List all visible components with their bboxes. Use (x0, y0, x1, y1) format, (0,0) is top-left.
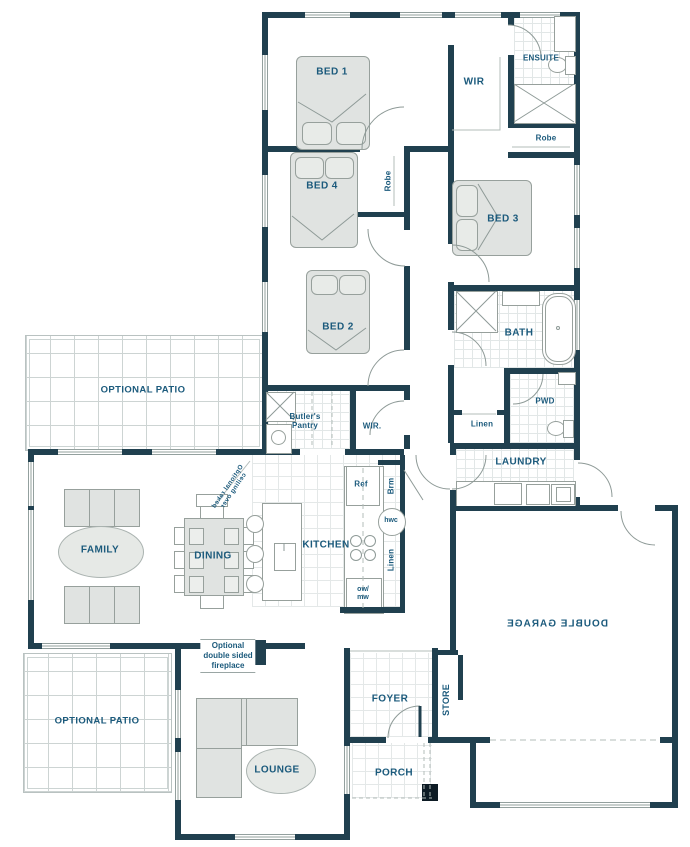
wall-wir-left (448, 45, 454, 150)
room-label-bath: BATH (505, 327, 534, 339)
placemat (189, 576, 204, 593)
porch-pier (422, 784, 438, 801)
room-label-lounge: LOUNGE (254, 764, 299, 776)
butlers-line1: Butler's (289, 412, 320, 421)
island-sink (274, 543, 296, 571)
room-label-robe-ensuite: Robe (536, 133, 557, 142)
bed-pillow (336, 122, 366, 145)
room-label-wir-master: WIR (464, 76, 485, 88)
wall-garage-left (450, 511, 456, 655)
window (42, 643, 110, 649)
door-arc-hall-entry (416, 455, 450, 489)
room-label-pwd: PWD (535, 396, 554, 405)
window (175, 752, 181, 800)
wall-laundry-top (450, 443, 580, 449)
door-arc-garage (621, 511, 655, 545)
room-label-butlers-pantry: Butler's Pantry (289, 412, 320, 430)
room-label-bed3: BED 3 (487, 213, 518, 225)
owmw-line1: ow/ (357, 586, 369, 594)
wall-store-right (458, 655, 463, 700)
window (235, 834, 295, 840)
door-arc-laundry-ext (578, 463, 612, 497)
window (400, 12, 442, 18)
wall-foyer-bottom (347, 737, 386, 743)
ensuite-toilet-tank (565, 56, 576, 75)
bath-shower (456, 291, 498, 333)
room-label-patio-top: OPTIONAL PATIO (101, 386, 186, 397)
bed-pillow (325, 157, 354, 179)
wall-hall-left (404, 152, 410, 230)
door-arc-bed2 (368, 350, 404, 386)
floor-plan: BED 1 BED 4 BED 2 BED 3 WIR ENSUITE Robe… (0, 0, 690, 847)
wall-foyer-store (432, 648, 438, 737)
room-label-foyer: FOYER (372, 693, 408, 705)
pwd-toilet-tank (563, 420, 574, 438)
window (574, 228, 580, 268)
bed-pillow (339, 275, 366, 295)
wall-laundry-left (450, 443, 456, 455)
fixture-label-ow-mw: ow/ mw (357, 586, 369, 602)
wall-robe4-bottom (356, 212, 408, 217)
room-label-family: FAMILY (81, 544, 119, 556)
wall-linen-top (450, 410, 462, 415)
pantry-basin (271, 430, 286, 445)
placemat (189, 528, 204, 545)
room-label-patio-bottom: OPTIONAL PATIO (55, 717, 140, 728)
wir-shelf-line (452, 57, 500, 130)
placemat (224, 576, 239, 593)
wall-hall-left (404, 435, 410, 449)
room-label-garage: DOUBLE GARAGE (506, 618, 608, 630)
bed-pillow (456, 219, 478, 251)
wall-garage-front (660, 737, 672, 743)
sliding-door (28, 510, 34, 600)
window (58, 449, 122, 455)
wall-lounge-left (175, 648, 181, 840)
sofa-icon (64, 586, 140, 624)
wall-lounge-foyer (344, 648, 350, 737)
stool-icon (246, 515, 264, 533)
window (305, 12, 350, 18)
dining-chair (200, 594, 224, 609)
ensuite-shower (514, 84, 576, 124)
butlers-line2: Pantry (289, 421, 320, 430)
wall-kitchen-bottom (340, 607, 405, 613)
wall-garage-front (432, 737, 490, 743)
room-label-laundry: LAUNDRY (495, 456, 546, 468)
wall-linen-top (497, 410, 510, 415)
window (344, 746, 350, 794)
room-label-bed1: BED 1 (316, 66, 347, 78)
fireplace-line1: Optional (203, 641, 252, 651)
wall-wirhall-bottom (345, 449, 404, 455)
fixture-label-brm: Brm (386, 478, 395, 495)
room-label-linen-hall: Linen (471, 419, 493, 428)
wall-brm-top (378, 460, 405, 465)
annotation-fireplace: Optional double sided fireplace (200, 639, 255, 673)
placemat (224, 528, 239, 545)
annotation-raked-ceiling: Optional raked ceiling over (211, 464, 252, 515)
owmw-line2: mw (357, 594, 369, 602)
window (455, 12, 501, 18)
room-label-store: STORE (441, 684, 451, 716)
washer-icon (526, 484, 550, 505)
bed-pillow (456, 185, 478, 217)
wall-hall-right (448, 365, 454, 443)
window (262, 55, 268, 110)
fixture-label-ref: Ref (354, 479, 368, 488)
room-label-dining: DINING (194, 550, 231, 562)
window (152, 449, 216, 455)
dryer-drum (556, 487, 571, 502)
fixture-label-linen-kitchen: Linen (386, 549, 395, 571)
room-label-robe-bed4: Robe (383, 171, 392, 192)
stool-icon (246, 575, 264, 593)
window (28, 462, 34, 506)
window (262, 175, 268, 227)
fixture-label-hwc: hwc (384, 517, 398, 525)
wall-bed1-bottom (404, 146, 454, 152)
brm-door-line (404, 470, 423, 500)
bed-pillow (302, 122, 332, 145)
sofa-icon (64, 489, 140, 527)
wall-hall-left (404, 266, 410, 350)
bath-vanity (502, 291, 540, 306)
window (262, 282, 268, 332)
room-label-kitchen: KITCHEN (302, 539, 349, 551)
room-label-porch: PORCH (375, 767, 413, 779)
window (574, 165, 580, 215)
room-label-wir-hall: WIR. (363, 421, 382, 430)
laundry-sink (494, 483, 522, 505)
room-label-bed4: BED 4 (306, 180, 337, 192)
lounge-sofa-icon (196, 698, 242, 798)
pwd-basin (558, 372, 576, 385)
wall-pantry-wir (350, 390, 356, 449)
bed-pillow (295, 157, 324, 179)
fireplace-line3: fireplace (203, 661, 252, 671)
wall-pwd-left (504, 368, 510, 443)
room-label-bed2: BED 2 (322, 321, 353, 333)
wall-robe-bed3 (508, 152, 580, 158)
wall-bed2-bottom (262, 385, 410, 391)
window (175, 690, 181, 738)
wall-apron-left (470, 743, 476, 808)
ensuite-vanity (554, 16, 576, 52)
stool-icon (246, 545, 264, 563)
bed-pillow (311, 275, 338, 295)
wall-ensuite-left (508, 12, 514, 25)
garage-door (500, 802, 650, 808)
bathtub-inner (545, 296, 573, 362)
room-label-ensuite: ENSUITE (523, 53, 559, 62)
fireplace-line2: double sided (203, 651, 252, 661)
wall-garage-right (672, 505, 678, 808)
door-arc-bed4 (368, 229, 405, 266)
